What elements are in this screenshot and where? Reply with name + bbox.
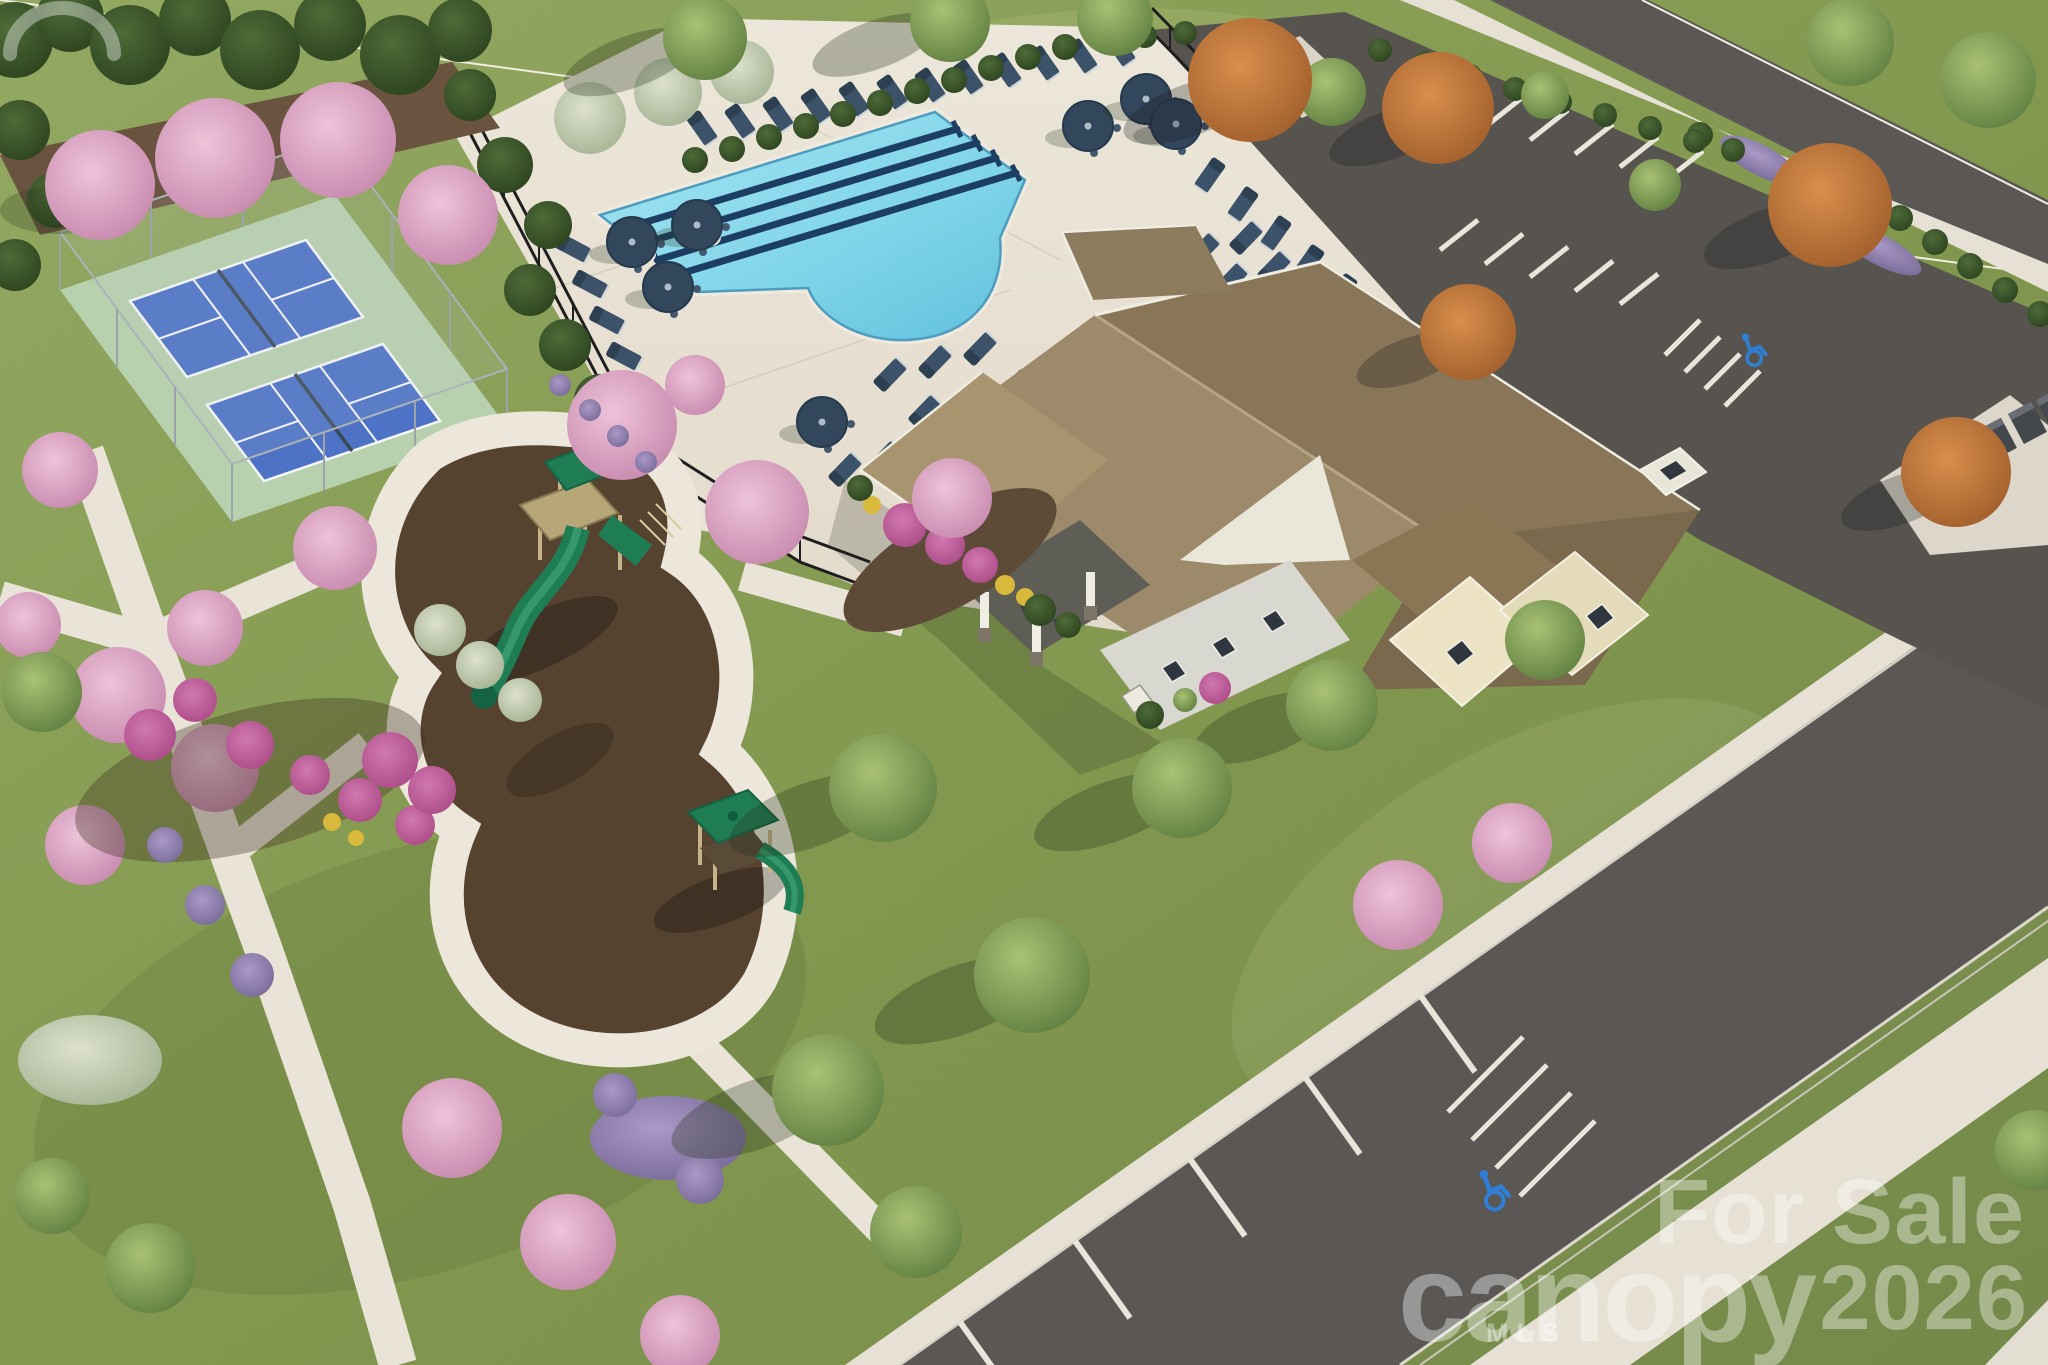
canopy-arc-icon [0,0,124,62]
aerial-rendering: For Sale 2026 canopy MLS [0,0,2048,1365]
scene-svg [0,0,2048,1365]
